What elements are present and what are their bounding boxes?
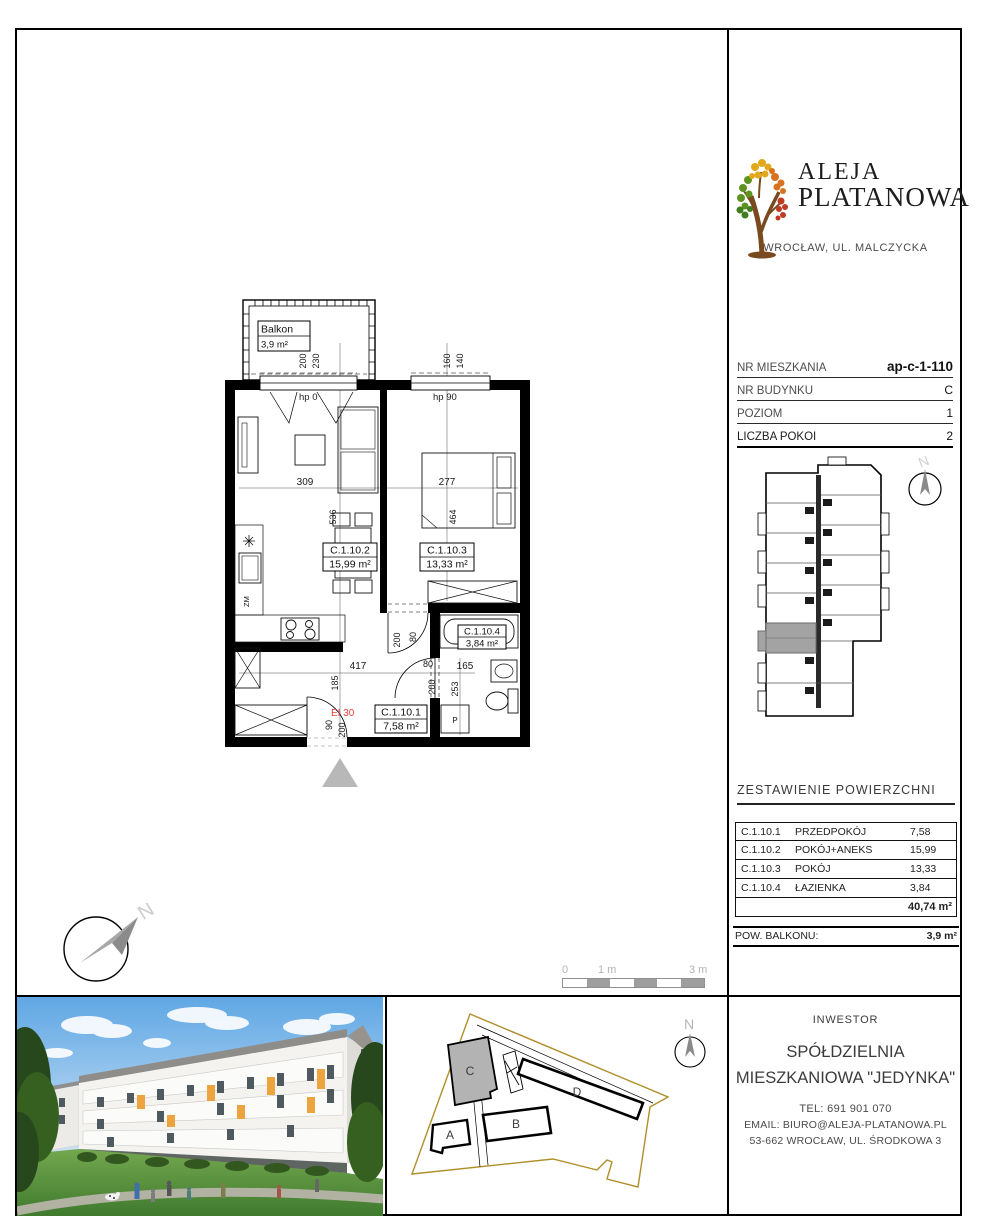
row-label: NR MIESZKANIA <box>737 362 826 374</box>
area-name: ŁAZIENKA <box>795 882 910 894</box>
bedroom-furniture <box>422 453 517 603</box>
balcony-area-value: 3,9 m² <box>927 930 957 942</box>
area-value: 3,84 <box>910 882 956 894</box>
area-value: 13,33 <box>910 863 956 875</box>
investor-phone: TEL: 691 901 070 <box>727 1103 964 1115</box>
row-label: LICZBA POKOI <box>737 431 816 443</box>
dim-label: 80 <box>423 659 433 669</box>
north-label: N <box>916 453 931 471</box>
area-row: C.1.10.3 POKÓJ 13,33 <box>735 860 957 879</box>
brand-location: WROCŁAW, UL. MALCZYCKA <box>727 242 964 254</box>
dim-label: 253 <box>450 681 460 696</box>
area-id: C.1.10.4 <box>736 882 795 894</box>
dim-label: 140 <box>455 353 465 368</box>
building-c-label: C <box>466 1064 475 1078</box>
entrance-marker-icon <box>322 758 358 787</box>
dim-label: 80 <box>408 632 418 642</box>
dim-label: 200 <box>392 632 402 647</box>
highlighted-unit <box>758 623 816 653</box>
area-row: C.1.10.4 ŁAZIENKA 3,84 <box>735 879 957 898</box>
unit-info-row: NR BUDYNKU C <box>737 378 953 401</box>
scale-1m: 1 m <box>598 964 616 976</box>
dim-label: 464 <box>448 509 458 524</box>
building-d-label: D <box>573 1085 582 1099</box>
building-a-label: A <box>446 1128 454 1142</box>
dim-label: 536 <box>328 509 338 524</box>
investor-address: 53-662 WROCŁAW, UL. ŚRODKOWA 3 <box>727 1135 964 1147</box>
scale-bar: 0 1 m 3 m <box>562 964 712 990</box>
row-label: POZIOM <box>737 408 782 420</box>
north-compass-main-icon: N <box>48 903 158 998</box>
dim-label: 200 <box>298 353 308 368</box>
north-label: N <box>684 1016 694 1032</box>
brand-name-line1: ALEJA <box>798 160 970 184</box>
building-b-label: B <box>512 1117 520 1131</box>
row-value: C <box>944 383 953 397</box>
building-photo <box>17 997 383 1216</box>
investor-email: EMAIL: BIURO@ALEJA-PLATANOWA.PL <box>727 1119 964 1131</box>
dim-label: hp 0 <box>299 392 318 403</box>
north-compass-right-icon: N <box>909 453 941 505</box>
areas-table: C.1.10.1 PRZEDPOKÓJ 7,58 C.1.10.2 POKÓJ+… <box>735 822 957 917</box>
window-right <box>411 373 490 390</box>
north-label: N <box>134 903 158 925</box>
room3-id: C.1.10.3 <box>427 545 467 557</box>
scale-bar-segments <box>562 978 705 988</box>
room3-area: 13,33 m² <box>426 559 468 571</box>
area-name: POKÓJ+ANEKS <box>795 844 910 856</box>
row-value: 1 <box>946 406 953 420</box>
balcony-label-box: Balkon 3,9 m² <box>258 321 310 351</box>
investor-header: INWESTOR <box>727 1014 964 1026</box>
area-total: 40,74 m² <box>908 901 956 913</box>
hall-wardrobes <box>235 648 307 735</box>
unit-info-row: POZIOM 1 <box>737 401 953 424</box>
floor-plan: Balkon 3,9 m² <box>225 285 535 790</box>
dim-label: 200 <box>427 679 437 694</box>
dim-label: 90 <box>324 720 334 730</box>
unit-info-table: NR MIESZKANIA ap-c-1-110 NR BUDYNKU C PO… <box>737 355 953 448</box>
dim-label: 417 <box>350 661 367 672</box>
area-total-row: 40,74 m² <box>735 898 957 917</box>
room4-area: 3,84 m² <box>466 639 498 650</box>
fire-rating-label: EI 30 <box>331 708 355 719</box>
area-value: 15,99 <box>910 844 956 856</box>
north-compass-site-icon: N <box>675 1016 705 1067</box>
investor-name-line1: SPÓŁDZIELNIA <box>727 1040 964 1066</box>
balcony-area: 3,9 m² <box>261 340 288 351</box>
dim-label: 277 <box>439 477 456 488</box>
room2-id: C.1.10.2 <box>330 545 370 557</box>
dim-label: 185 <box>330 675 340 690</box>
dim-label: 309 <box>297 477 314 488</box>
area-row: C.1.10.2 POKÓJ+ANEKS 15,99 <box>735 841 957 860</box>
area-row: C.1.10.1 PRZEDPOKÓJ 7,58 <box>735 822 957 841</box>
brand-logo: ALEJA PLATANOWA <box>798 160 970 212</box>
dimension-lines <box>239 343 518 735</box>
unit-info-row: NR MIESZKANIA ap-c-1-110 <box>737 355 953 378</box>
scale-0: 0 <box>562 964 568 976</box>
room2-area: 15,99 m² <box>329 559 371 571</box>
room1-area: 7,58 m² <box>383 721 419 733</box>
row-value: ap-c-1-110 <box>887 359 953 374</box>
washer-label: P <box>452 716 457 725</box>
row-value: 2 <box>946 429 953 443</box>
balcony-area-row: POW. BALKONU: 3,9 m² <box>733 926 959 947</box>
area-id: C.1.10.3 <box>736 863 795 875</box>
investor-block: INWESTOR SPÓŁDZIELNIA MIESZKANIOWA "JEDY… <box>727 1014 964 1147</box>
investor-name-line2: MIESZKANIOWA "JEDYNKA" <box>727 1066 964 1092</box>
dim-label: 165 <box>457 661 474 672</box>
area-id: C.1.10.1 <box>736 826 795 838</box>
room4-id: C.1.10.4 <box>464 627 500 638</box>
areas-title: ZESTAWIENIE POWIERZCHNI <box>737 783 955 805</box>
dim-label: hp 90 <box>433 392 457 403</box>
balcony-name: Balkon <box>261 324 293 336</box>
brand-name-line2: PLATANOWA <box>798 184 970 212</box>
area-name: POKÓJ <box>795 863 910 875</box>
room1-id: C.1.10.1 <box>381 707 421 719</box>
dishwasher-label: ZM <box>242 596 251 607</box>
balcony-area-label: POW. BALKONU: <box>735 930 818 942</box>
building-floor-overview: N <box>733 453 963 763</box>
area-id: C.1.10.2 <box>736 844 795 856</box>
unit-info-row: LICZBA POKOI 2 <box>737 424 953 448</box>
area-value: 7,58 <box>910 826 956 838</box>
area-name: PRZEDPOKÓJ <box>795 826 910 838</box>
dim-label: 200 <box>337 722 347 737</box>
dim-label: 230 <box>311 353 321 368</box>
site-plan: C D B A N <box>385 997 727 1216</box>
scale-3m: 3 m <box>689 964 707 976</box>
page: Balkon 3,9 m² <box>0 0 992 1222</box>
dim-label: 160 <box>442 353 452 368</box>
row-label: NR BUDYNKU <box>737 385 813 397</box>
